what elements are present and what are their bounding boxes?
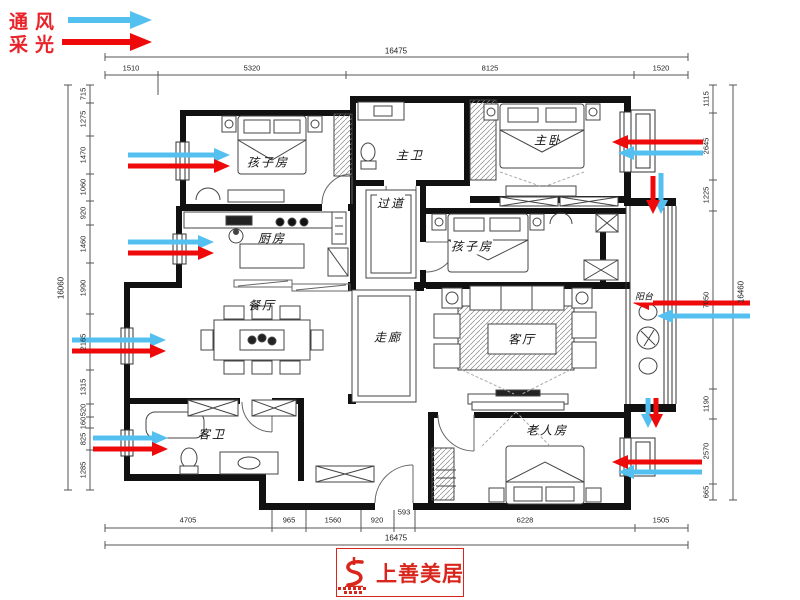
dim-bottom-seg: 6228 xyxy=(517,516,534,525)
dim-bottom-total: 16475 xyxy=(385,534,407,543)
dim-left-seg: 715 xyxy=(79,88,88,101)
room-label-elder-room: 老人房 xyxy=(526,422,568,439)
dim-bottom-seg: 593 xyxy=(398,508,411,517)
room-label-corridor: 走廊 xyxy=(374,329,402,346)
dim-right-seg: 1190 xyxy=(702,396,711,412)
room-label-passage: 过道 xyxy=(377,195,405,212)
brand-name: 上善美居 xyxy=(376,558,464,588)
dim-left-seg: 825 xyxy=(79,433,88,446)
dim-left-seg: 520 xyxy=(79,404,88,417)
dim-bottom-seg: 4705 xyxy=(180,516,197,525)
logo-fine-print xyxy=(344,591,362,594)
dim-bottom-seg: 1560 xyxy=(325,516,342,525)
brand-logo-mark-icon xyxy=(336,554,372,592)
room-label-child-room-2: 孩子房 xyxy=(451,238,493,255)
dim-top-seg: 8125 xyxy=(482,64,499,73)
dim-left-seg: 1460 xyxy=(79,236,88,253)
dim-top-total: 16475 xyxy=(385,47,407,56)
dim-bottom-seg: 965 xyxy=(283,516,296,525)
dim-left-seg: 1315 xyxy=(79,379,88,396)
dim-right-seg: 665 xyxy=(702,486,711,499)
dim-left-seg: 1470 xyxy=(79,147,88,164)
room-label-kitchen: 厨房 xyxy=(258,230,286,247)
room-label-master-bedroom: 主卧 xyxy=(534,132,562,149)
room-label-living-room: 客厅 xyxy=(508,331,536,348)
dim-top-seg: 5320 xyxy=(244,64,261,73)
floorplan-canvas: 通风 采光 孩子房 主卫 主卧 过道 厨房 孩子房 餐厅 走廊 客厅 阳台 客卫… xyxy=(0,0,800,600)
dim-right-total: 16460 xyxy=(737,281,746,303)
room-label-guest-bath: 客卫 xyxy=(198,426,226,443)
dim-right-seg: 1225 xyxy=(702,187,711,204)
room-label-dining-room: 餐厅 xyxy=(248,297,276,314)
dim-left-seg: 1990 xyxy=(79,280,88,297)
room-label-child-room-1: 孩子房 xyxy=(247,154,289,171)
dim-right-seg: 1115 xyxy=(702,91,711,107)
dim-left-seg: 1275 xyxy=(79,111,88,128)
brand-logo: 上善美居 xyxy=(336,548,464,597)
room-label-balcony: 阳台 xyxy=(635,290,653,303)
dim-left-seg: 920 xyxy=(79,207,88,220)
dim-left-seg: 2165 xyxy=(79,334,88,351)
dim-left-seg: 1285 xyxy=(79,462,88,479)
dim-left-total: 16060 xyxy=(57,277,66,299)
dim-bottom-seg: 920 xyxy=(371,516,384,525)
dim-right-seg: 2645 xyxy=(702,138,711,155)
dim-top-seg: 1520 xyxy=(653,64,670,73)
legend-daylight-label: 采光 xyxy=(9,30,61,57)
logo-fine-print xyxy=(338,587,368,590)
dim-right-seg: 2570 xyxy=(702,443,711,460)
dim-left-seg: 1060 xyxy=(79,179,88,196)
dim-top-seg: 1510 xyxy=(123,64,140,73)
dim-right-seg: 7050 xyxy=(702,292,711,309)
dim-left-seg: 160 xyxy=(79,417,88,430)
room-label-master-bath: 主卫 xyxy=(396,147,424,164)
dim-bottom-seg: 1505 xyxy=(653,516,670,525)
